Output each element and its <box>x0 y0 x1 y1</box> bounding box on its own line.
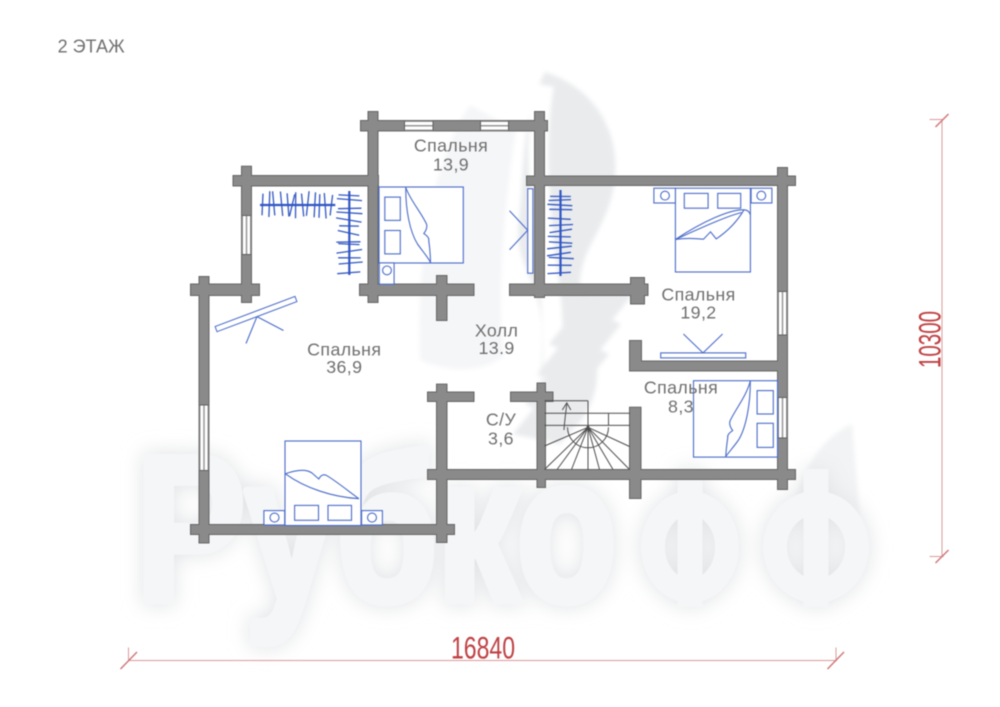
svg-text:Спальня: Спальня <box>414 136 488 156</box>
svg-text:С/У: С/У <box>486 410 517 430</box>
svg-text:13,9: 13,9 <box>433 154 469 174</box>
svg-text:16840: 16840 <box>451 630 515 666</box>
svg-text:Спальня: Спальня <box>644 377 718 397</box>
svg-text:13.9: 13.9 <box>478 338 514 358</box>
svg-text:8,3: 8,3 <box>668 396 694 416</box>
svg-text:3,6: 3,6 <box>488 428 514 448</box>
svg-text:36,9: 36,9 <box>326 357 362 377</box>
svg-text:19,2: 19,2 <box>680 302 716 322</box>
svg-text:2 ЭТАЖ: 2 ЭТАЖ <box>58 37 125 57</box>
svg-text:10300: 10300 <box>912 311 948 368</box>
